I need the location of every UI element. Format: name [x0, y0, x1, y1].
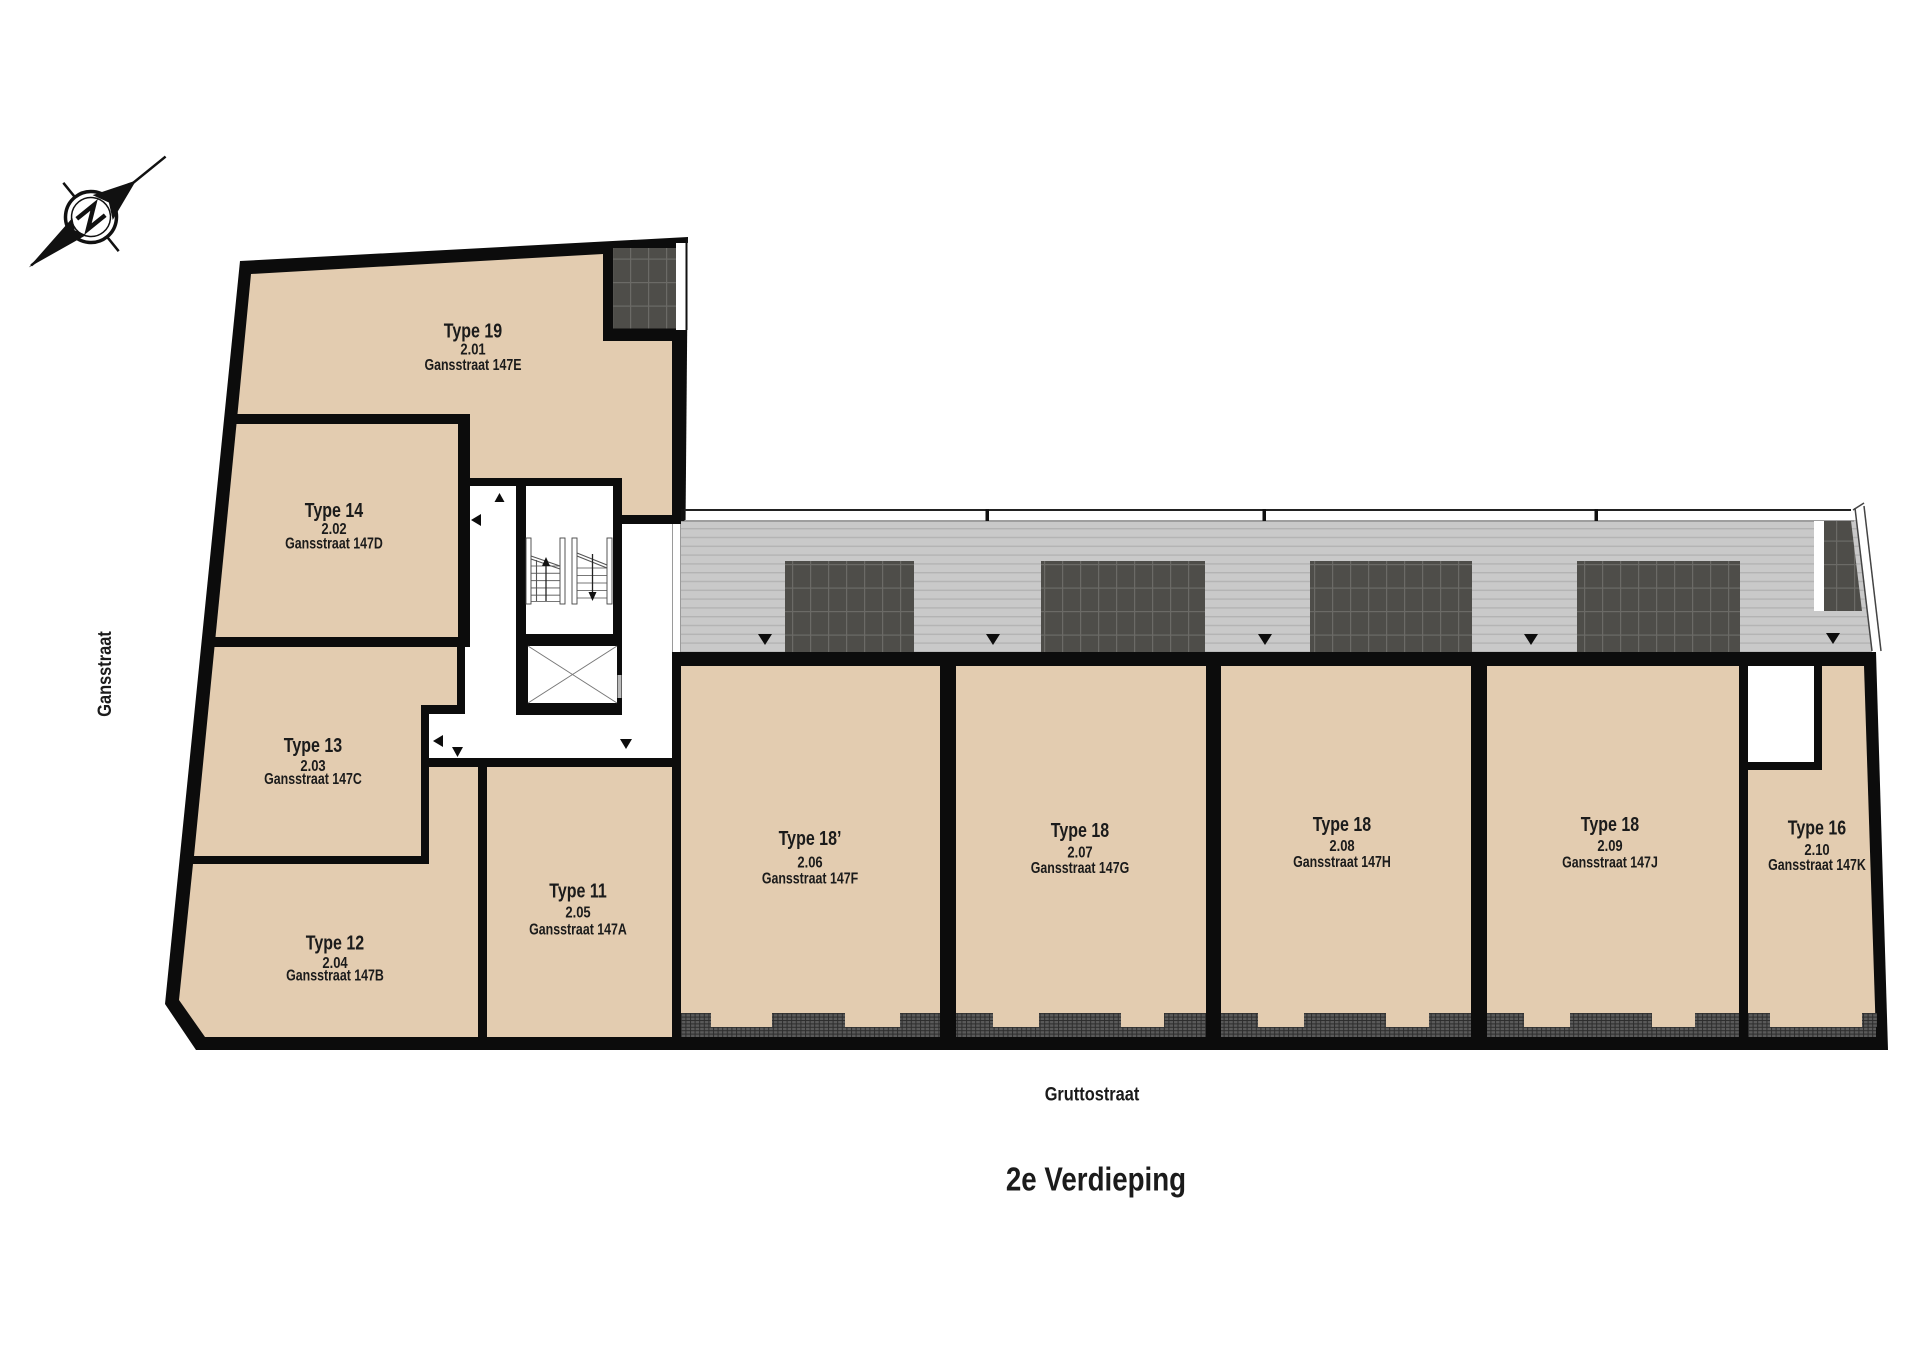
svg-text:Type 18: Type 18	[1051, 819, 1109, 841]
svg-text:Type 16: Type 16	[1788, 817, 1846, 839]
svg-text:Gansstraat 147K: Gansstraat 147K	[1768, 856, 1866, 874]
svg-text:Gansstraat 147F: Gansstraat 147F	[762, 869, 859, 887]
svg-text:Type 18’: Type 18’	[779, 827, 842, 849]
svg-text:Gruttostraat: Gruttostraat	[1045, 1083, 1140, 1105]
svg-text:Gansstraat 147G: Gansstraat 147G	[1031, 859, 1130, 877]
svg-text:Gansstraat: Gansstraat	[94, 631, 116, 717]
svg-text:Gansstraat 147J: Gansstraat 147J	[1562, 853, 1658, 871]
svg-text:Type 12: Type 12	[306, 932, 364, 954]
svg-text:2e Verdieping: 2e Verdieping	[1006, 1161, 1186, 1198]
svg-text:Type 19: Type 19	[444, 320, 502, 342]
svg-text:Gansstraat 147H: Gansstraat 147H	[1293, 853, 1391, 871]
svg-text:Gansstraat 147B: Gansstraat 147B	[286, 966, 384, 984]
svg-text:Type 13: Type 13	[284, 734, 342, 756]
svg-text:Gansstraat 147A: Gansstraat 147A	[529, 920, 627, 938]
svg-text:Gansstraat 147D: Gansstraat 147D	[285, 534, 383, 552]
svg-text:Type 18: Type 18	[1581, 813, 1639, 835]
svg-text:Type 11: Type 11	[549, 880, 607, 902]
svg-text:Gansstraat 147C: Gansstraat 147C	[264, 770, 362, 788]
svg-text:Gansstraat 147E: Gansstraat 147E	[424, 356, 521, 374]
svg-text:Type 14: Type 14	[305, 499, 363, 521]
svg-text:Type 18: Type 18	[1313, 813, 1371, 835]
